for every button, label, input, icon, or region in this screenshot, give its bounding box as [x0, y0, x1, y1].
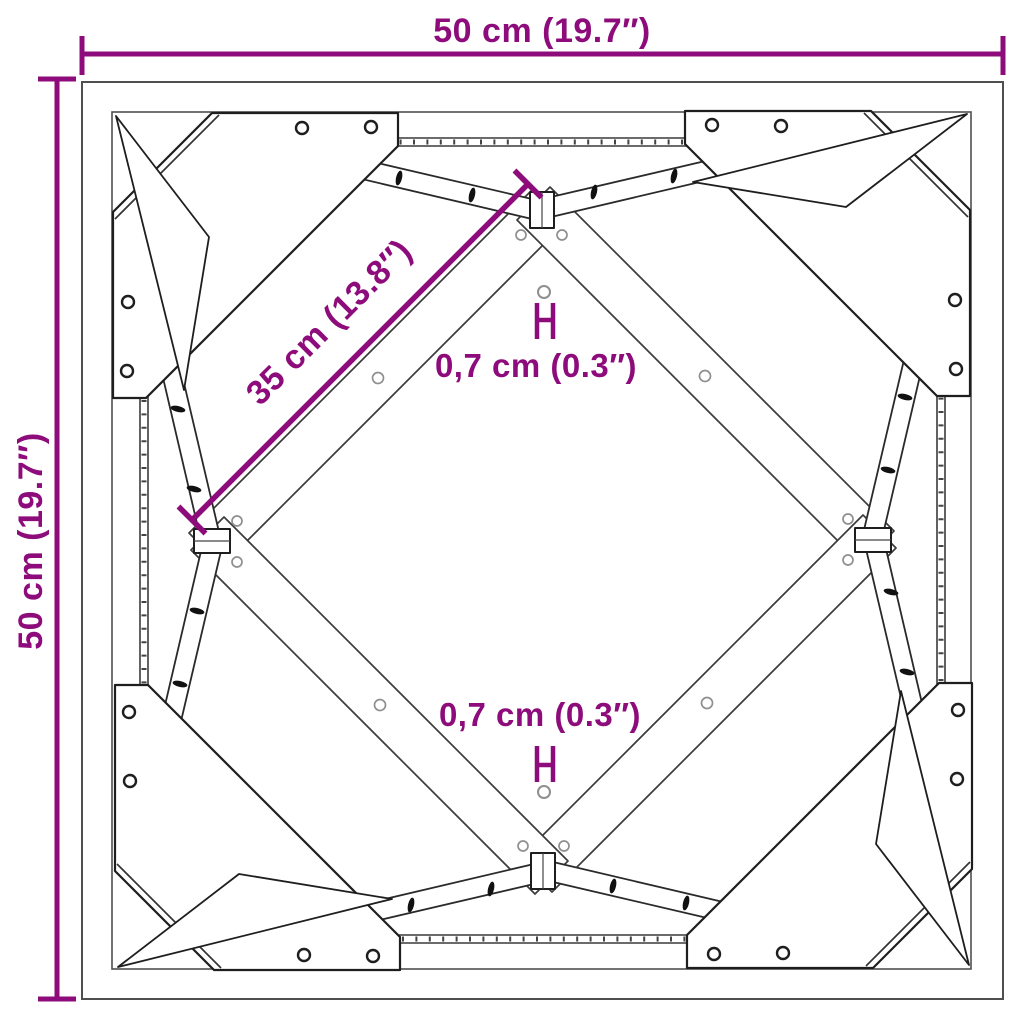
height-dimension-label: 50 cm (19.7″): [12, 432, 50, 649]
diagram-stage: 50 cm (19.7″) 50 cm (19.7″) 35 cm (13.8″…: [0, 0, 1024, 1024]
hole-diameter-marker-icon: [537, 746, 553, 782]
hole-top: [538, 286, 550, 298]
width-dimension-label: 50 cm (19.7″): [433, 12, 650, 50]
corner-gusset-bottom-right: [553, 549, 972, 968]
hole-diameter-marker-icon: [537, 303, 553, 339]
table-frame-dimension-diagram: 50 cm (19.7″) 50 cm (19.7″) 35 cm (13.8″…: [0, 0, 1024, 1024]
hole-bottom: [538, 786, 550, 798]
corner-gusset-bottom-left: [115, 551, 534, 970]
hole-bottom-label: 0,7 cm (0.3″): [439, 696, 641, 733]
corner-gusset-top-right: [551, 111, 970, 530]
hole-top-label: 0,7 cm (0.3″): [435, 347, 637, 384]
